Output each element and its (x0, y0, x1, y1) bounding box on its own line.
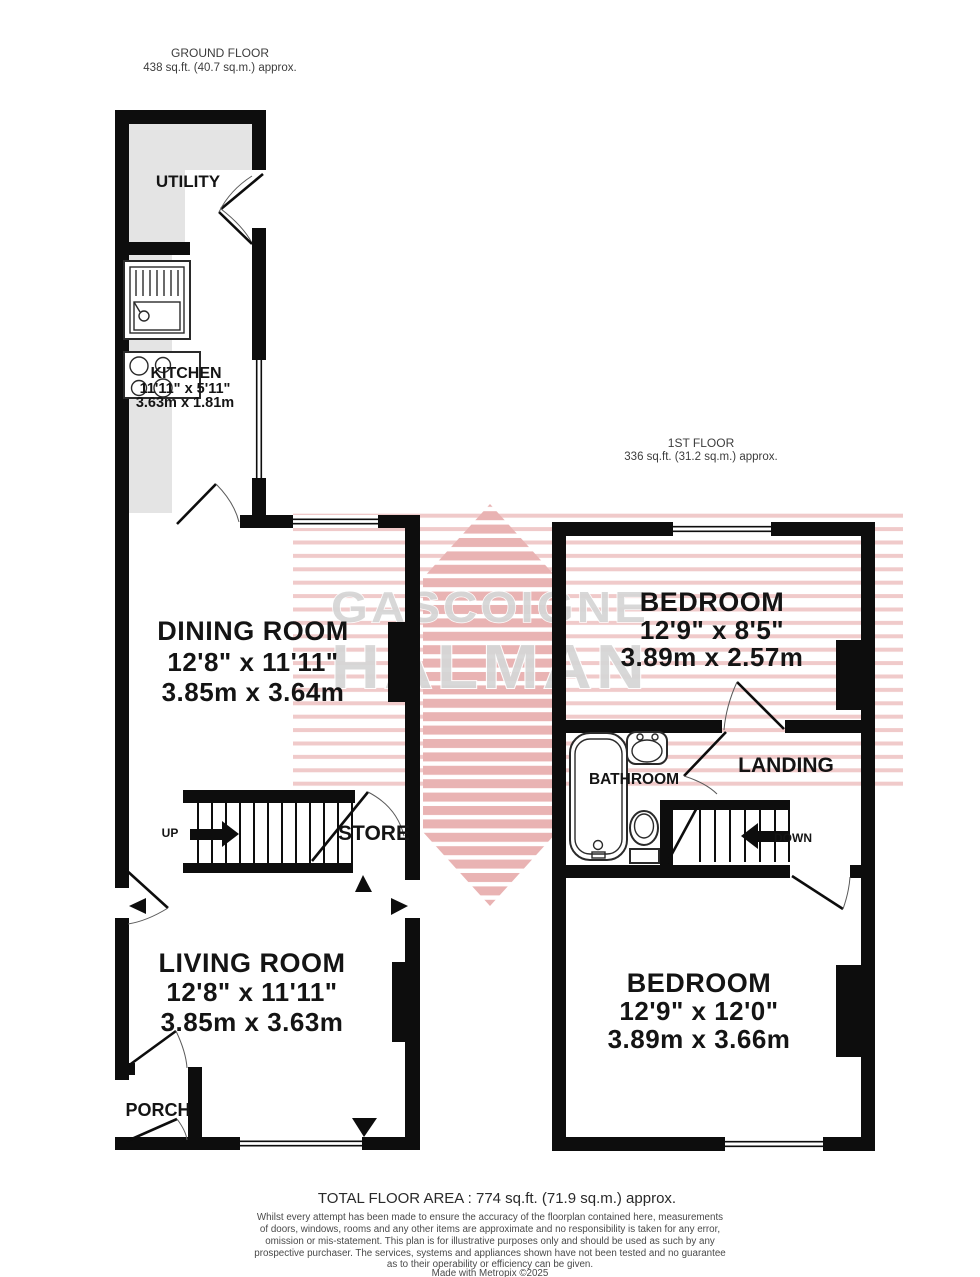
metropix-credit: Made with Metropix ©2025 (432, 1268, 549, 1277)
disclaimer-line-1: Whilst every attempt has been made to en… (257, 1212, 723, 1223)
bedroom2-door-swing (792, 876, 850, 909)
store-label: STORE (338, 822, 410, 845)
bedroom2-window (725, 1137, 823, 1151)
stairs-first (667, 802, 789, 863)
toilet-icon (630, 811, 659, 863)
kitchen-window (252, 360, 266, 478)
disclaimer-line-4: prospective purchaser. The services, sys… (254, 1248, 726, 1259)
bathroom-label: BATHROOM (589, 771, 679, 788)
bedroom1-dims-metric: 3.89m x 2.57m (621, 642, 804, 672)
opening-arrow-up-icon (355, 875, 372, 892)
bedroom1-chimney-breast (836, 640, 861, 710)
landing-label: LANDING (738, 754, 834, 777)
bedroom1-dims-imperial: 12'9" x 8'5" (640, 615, 784, 645)
disclaimer-line-2: of doors, windows, rooms and any other i… (260, 1224, 720, 1235)
bedroom2-label: BEDROOM (627, 968, 772, 998)
opening-arrow-left-icon (129, 898, 146, 914)
living-room-label: LIVING ROOM (159, 948, 346, 978)
bath-icon (570, 733, 627, 860)
basin-icon (627, 732, 667, 764)
dining-living-door-swing (125, 869, 168, 924)
kitchen-dining-door-swing (177, 484, 239, 524)
stairs-down-label: DOWN (774, 831, 812, 845)
dining-chimney-breast (388, 622, 420, 702)
utility-label: UTILITY (156, 172, 221, 191)
kitchen-label: KITCHEN (150, 365, 221, 382)
living-chimney-breast (392, 962, 420, 1042)
bedroom2-dims-imperial: 12'9" x 12'0" (619, 996, 778, 1026)
footer: TOTAL FLOOR AREA : 774 sq.ft. (71.9 sq.m… (254, 1190, 726, 1277)
porch-label: PORCH (125, 1100, 190, 1120)
first-floor-title: 1ST FLOOR (668, 436, 735, 450)
bedroom1-window (673, 522, 771, 536)
first-floor-area: 336 sq.ft. (31.2 sq.m.) approx. (624, 451, 777, 463)
ground-floor-title: GROUND FLOOR (171, 46, 269, 60)
bedroom1-label: BEDROOM (640, 587, 785, 617)
dining-window (293, 515, 378, 528)
watermark-brand-top: GASCOIGNE (331, 583, 649, 632)
living-dims-imperial: 12'8" x 11'11" (166, 977, 337, 1007)
watermark-brand-bottom: HALMAN (331, 633, 649, 702)
dining-dims-metric: 3.85m x 3.64m (162, 677, 345, 707)
opening-arrow-down-icon (352, 1118, 377, 1137)
floorplan-page: GASCOIGNE HALMAN (0, 0, 980, 1277)
living-dims-metric: 3.85m x 3.63m (161, 1007, 344, 1037)
ground-floor-area: 438 sq.ft. (40.7 sq.m.) approx. (143, 62, 296, 74)
disclaimer-line-3: omission or mis-statement. This plan is … (265, 1236, 715, 1247)
dining-dims-imperial: 12'8" x 11'11" (167, 647, 338, 677)
kitchen-dims-metric: 3.63m x 1.81m (136, 395, 234, 411)
opening-arrow-right-icon (391, 898, 408, 915)
kitchen-sink-icon (124, 261, 190, 339)
watermark-diamond-logo (423, 504, 557, 906)
bedroom2-dims-metric: 3.89m x 3.66m (608, 1024, 791, 1054)
bedroom2-chimney-breast (836, 965, 861, 1057)
living-window (240, 1137, 362, 1150)
floorplan-image: GASCOIGNE HALMAN (0, 0, 980, 1277)
dining-room-label: DINING ROOM (157, 616, 349, 646)
total-floor-area: TOTAL FLOOR AREA : 774 sq.ft. (71.9 sq.m… (318, 1190, 676, 1207)
stairs-up-label: UP (162, 826, 179, 840)
